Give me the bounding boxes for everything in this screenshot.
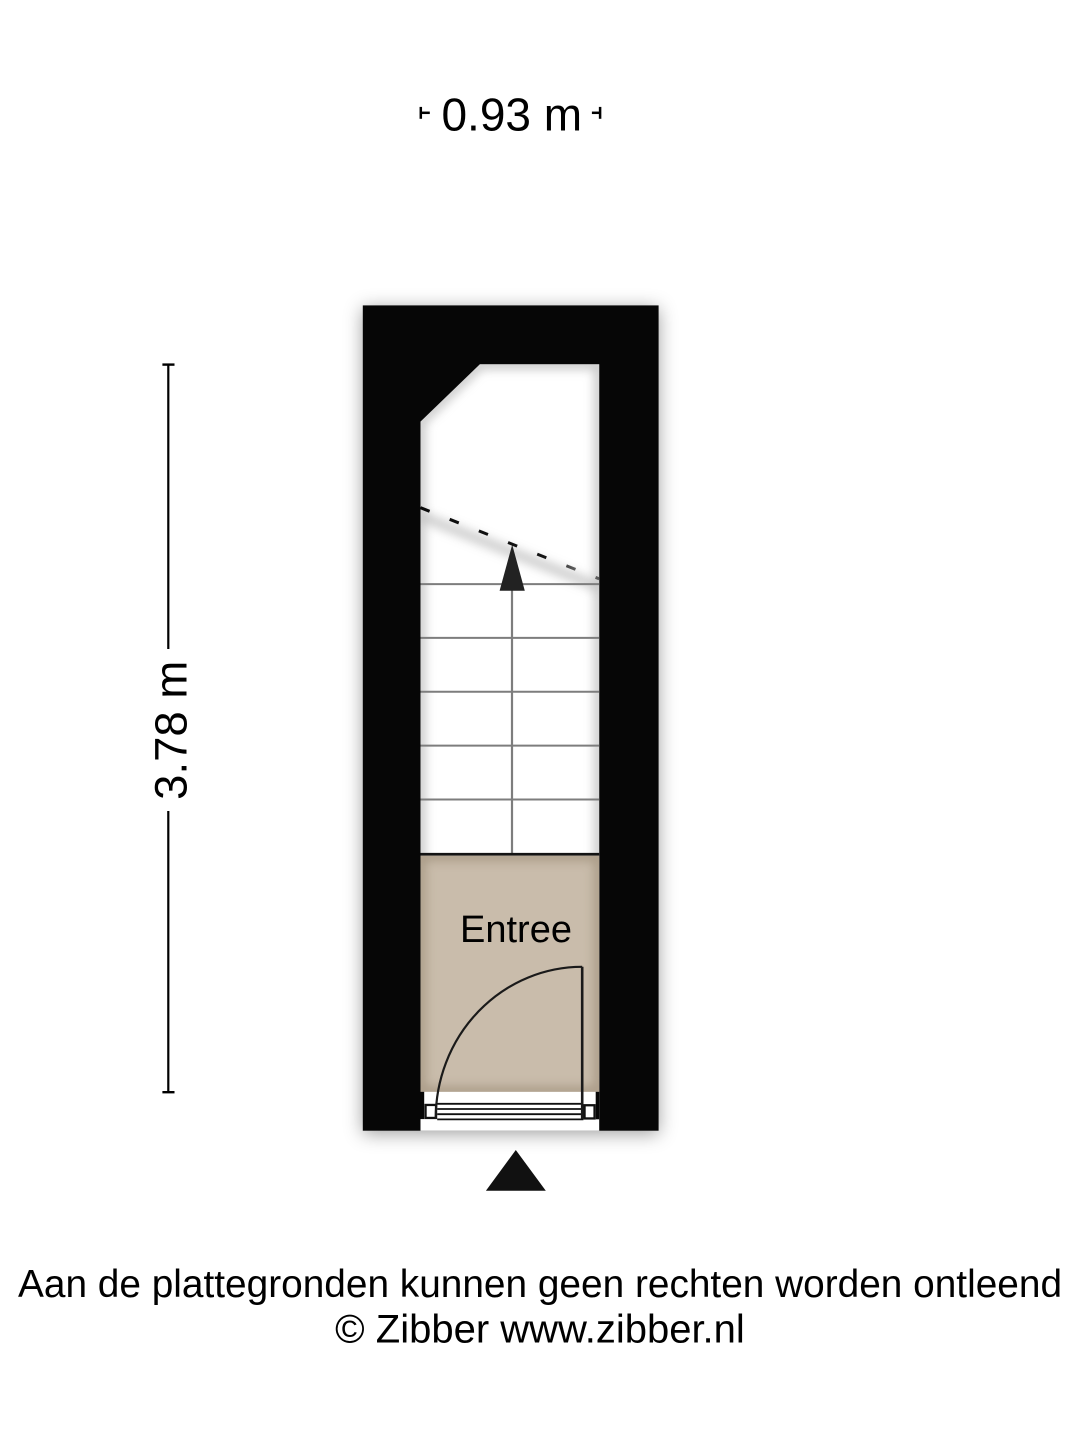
svg-text:Aan de plattegronden kunnen ge: Aan de plattegronden kunnen geen rechten…: [18, 1263, 1062, 1306]
svg-text:© Zibber www.zibber.nl: © Zibber www.zibber.nl: [335, 1308, 745, 1352]
svg-text:3.78 m: 3.78 m: [145, 661, 196, 800]
svg-text:0.93 m: 0.93 m: [441, 88, 582, 140]
svg-text:Entree: Entree: [460, 909, 572, 951]
